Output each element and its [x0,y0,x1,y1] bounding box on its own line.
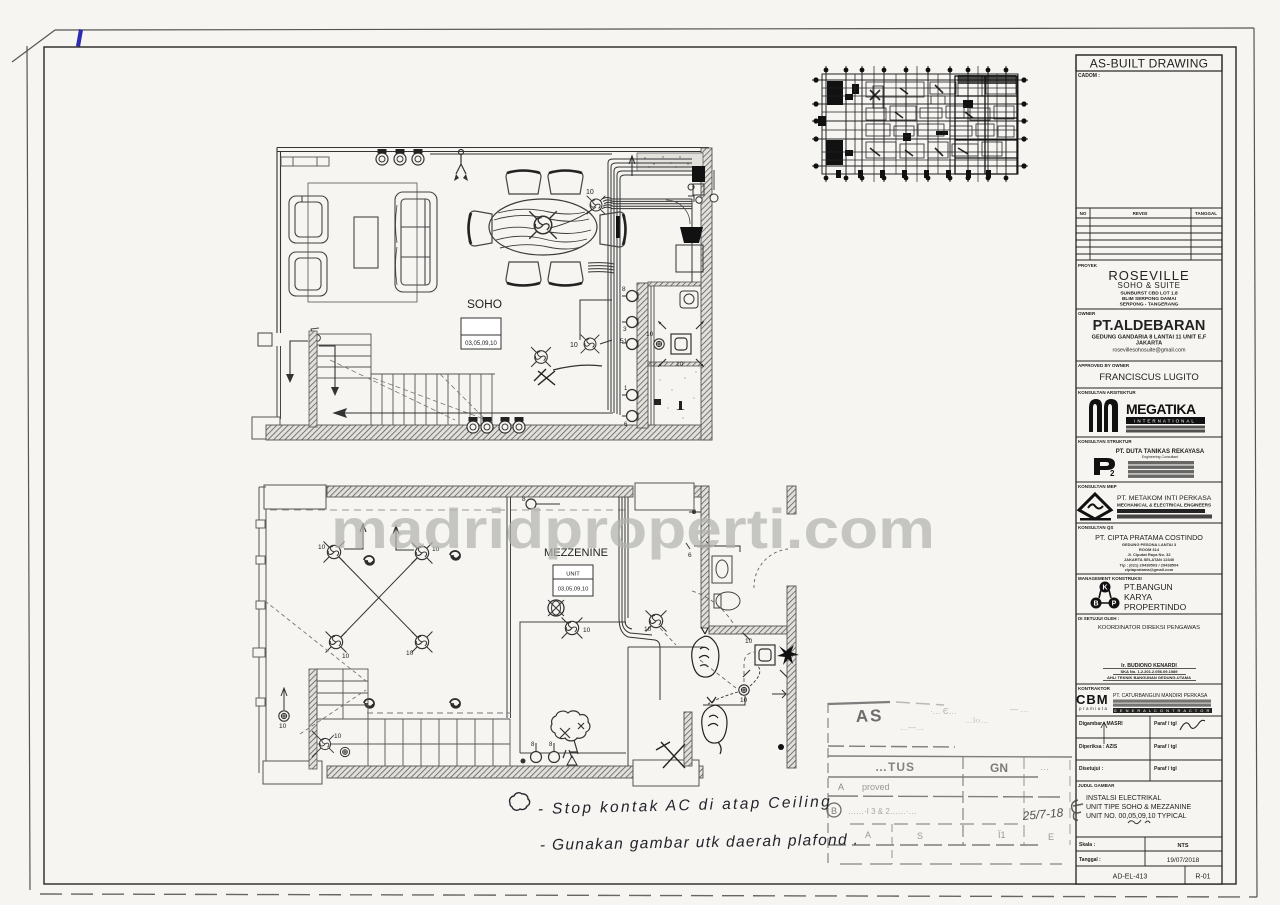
svg-text:Paraf / tgl: Paraf / tgl [1154,744,1177,750]
svg-text:BLIM SERPONG DAMAI: BLIM SERPONG DAMAI [1122,296,1177,302]
svg-text:APPROVED BY OWNER: APPROVED BY OWNER [1078,363,1130,368]
svg-text:MANAGEMENT KONSTRUKSI: MANAGEMENT KONSTRUKSI [1078,576,1142,581]
svg-text:AS-BUILT DRAWING: AS-BUILT DRAWING [1090,57,1209,71]
svg-text:3: 3 [623,326,627,333]
svg-text:SOHO: SOHO [467,299,502,311]
svg-text:……·І 3 & 2……·…: ……·І 3 & 2……·… [848,807,916,816]
svg-text:PT. CIPTA PRATAMA COSTINDO: PT. CIPTA PRATAMA COSTINDO [1095,533,1203,542]
svg-text:…І‹›…: …І‹›… [965,716,989,725]
svg-text:PT. METAKOM INTI PERKASA: PT. METAKOM INTI PERKASA [1117,495,1212,502]
svg-text:Ї1: Ї1 [998,830,1006,840]
svg-text:10: 10 [740,697,748,704]
svg-text:10: 10 [583,627,591,634]
svg-text:JAKARTA: JAKARTA [1136,341,1162,347]
svg-text:2: 2 [1110,469,1115,478]
svg-text:FRANCISCUS LUGITO: FRANCISCUS LUGITO [1099,372,1199,383]
svg-text:03,05,09,10: 03,05,09,10 [558,587,589,593]
svg-text:KONSULTAN QS: KONSULTAN QS [1078,525,1113,530]
svg-text:CBM: CBM [1076,692,1109,707]
svg-text:GN: GN [990,761,1008,775]
svg-text:19/07/2018: 19/07/2018 [1167,857,1200,864]
svg-text:Engineering Consultant: Engineering Consultant [1142,455,1178,459]
svg-text:Diperiksa : AZIS: Diperiksa : AZIS [1079,744,1118,750]
svg-text:10: 10 [745,638,753,645]
svg-text:JAKARTA SELATAN 12340: JAKARTA SELATAN 12340 [1124,557,1175,562]
svg-text:INSTALSI ELECTRIKAL: INSTALSI ELECTRIKAL [1086,795,1161,802]
svg-text:ciptapratama@gmail.com: ciptapratama@gmail.com [1125,567,1174,572]
svg-text:SERPONG - TANGERANG: SERPONG - TANGERANG [1120,302,1179,308]
svg-text:PROPERTINDO: PROPERTINDO [1124,602,1187,612]
svg-text:MEGATIKA: MEGATIKA [1126,401,1196,417]
svg-text:INTERNATIONAL: INTERNATIONAL [1134,419,1196,424]
svg-text:NO: NO [1080,211,1087,216]
svg-text:madridproperti.com: madridproperti.com [331,497,935,560]
svg-text:MECHANICAL & ELECTRICAL ENGINE: MECHANICAL & ELECTRICAL ENGINEERS [1117,503,1211,508]
svg-text:P: P [1112,601,1117,608]
svg-text:KONTRAKTOR: KONTRAKTOR [1078,686,1111,691]
svg-text:PROYEK: PROYEK [1078,263,1098,268]
svg-text:…: … [1040,762,1049,772]
svg-text:B: B [831,806,837,816]
svg-text:…—…: …—… [900,723,924,732]
svg-text:NTS: NTS [1178,843,1189,849]
svg-text:KONSULTAN STRUKTUR: KONSULTAN STRUKTUR [1078,439,1132,444]
svg-text:10: 10 [644,626,652,633]
svg-text:Paraf / tgl: Paraf / tgl [1154,766,1177,772]
svg-text:8: 8 [622,286,626,293]
svg-text:Skala :: Skala : [1079,842,1095,848]
svg-text:10: 10 [318,544,326,551]
svg-text:G E N E R A L C O N T R A C: G E N E R A L C O N T R A C T O R [1114,708,1211,713]
svg-text:K: K [1102,585,1107,592]
svg-text:A: A [838,782,844,792]
svg-text:KONSULTAN MEP: KONSULTAN MEP [1078,484,1117,489]
svg-text:JUDUL GAMBAR: JUDUL GAMBAR [1078,783,1115,788]
svg-text:OWNER: OWNER [1078,311,1096,316]
svg-text:10: 10 [676,361,684,368]
svg-text:E: E [1048,832,1054,842]
svg-text:KARYA: KARYA [1124,592,1152,602]
svg-text:CADOM :: CADOM : [1078,73,1100,79]
svg-text:PT. CATURBANGUN MANDIRI PERKAS: PT. CATURBANGUN MANDIRI PERKASA [1113,693,1208,699]
svg-text:rosevillesohosuite@gmail.com: rosevillesohosuite@gmail.com [1113,348,1186,354]
svg-text:KOORDINATOR DIREKSI PENGAWAS: KOORDINATOR DIREKSI PENGAWAS [1098,625,1200,631]
svg-text:A: A [865,830,871,840]
svg-text:proved: proved [862,782,890,792]
svg-text:UNIT TIPE SOHO & MEZZANINE: UNIT TIPE SOHO & MEZZANINE [1086,804,1191,811]
svg-text:AHLI TEKNIK BANGUNAN GEDUNG-UT: AHLI TEKNIK BANGUNAN GEDUNG-UTAMA [1107,675,1191,680]
svg-text:S: S [917,831,923,841]
svg-text:10: 10 [586,189,594,196]
svg-text:REVISI: REVISI [1133,211,1148,216]
svg-text:PT.BANGUN: PT.BANGUN [1124,582,1173,592]
svg-text:SKA No. 1.2.201.2.056.09.1089: SKA No. 1.2.201.2.056.09.1089 [1121,669,1179,674]
svg-text:UNIT NO. 00,05,09,10 TYPICAL: UNIT NO. 00,05,09,10 TYPICAL [1086,813,1187,820]
svg-text:10: 10 [646,331,654,338]
svg-text:AD-EL-413: AD-EL-413 [1113,874,1148,881]
svg-text:10: 10 [279,723,287,730]
svg-text:10: 10 [342,653,350,660]
svg-text:pramiata: pramiata [1079,706,1109,711]
svg-text:PT.ALDEBARAN: PT.ALDEBARAN [1093,318,1206,334]
svg-text:…TUS: …TUS [875,760,915,774]
svg-text:03,05,09,10: 03,05,09,10 [465,341,497,347]
svg-text:KONSULTAN ARSITEKTUR: KONSULTAN ARSITEKTUR [1078,390,1136,395]
svg-text:Paraf / tgl: Paraf / tgl [1154,721,1177,727]
svg-text:TANGGAL: TANGGAL [1195,211,1217,216]
svg-text:SOHO & SUITE: SOHO & SUITE [1118,281,1181,290]
svg-text:SUNBURST CBD LOT 1.8: SUNBURST CBD LOT 1.8 [1120,291,1178,297]
svg-text:10: 10 [334,733,342,740]
svg-text:— …: — … [1010,705,1028,714]
svg-text:B: B [1093,601,1098,608]
svg-text:UNIT: UNIT [566,572,580,578]
svg-text:10: 10 [406,650,414,657]
svg-text:Tanggal :: Tanggal : [1079,857,1101,863]
svg-text:51: 51 [620,338,628,345]
svg-text:Disetujui :: Disetujui : [1079,766,1104,772]
svg-text:10: 10 [570,342,578,349]
svg-text:R-01: R-01 [1195,874,1210,881]
svg-text:AS: AS [855,706,883,726]
svg-text:·… Є…: ·… Є… [930,707,957,716]
svg-text:Digambar : MASRI: Digambar : MASRI [1079,721,1123,727]
svg-text:DI SETUJUI OLEH :: DI SETUJUI OLEH : [1078,616,1120,621]
